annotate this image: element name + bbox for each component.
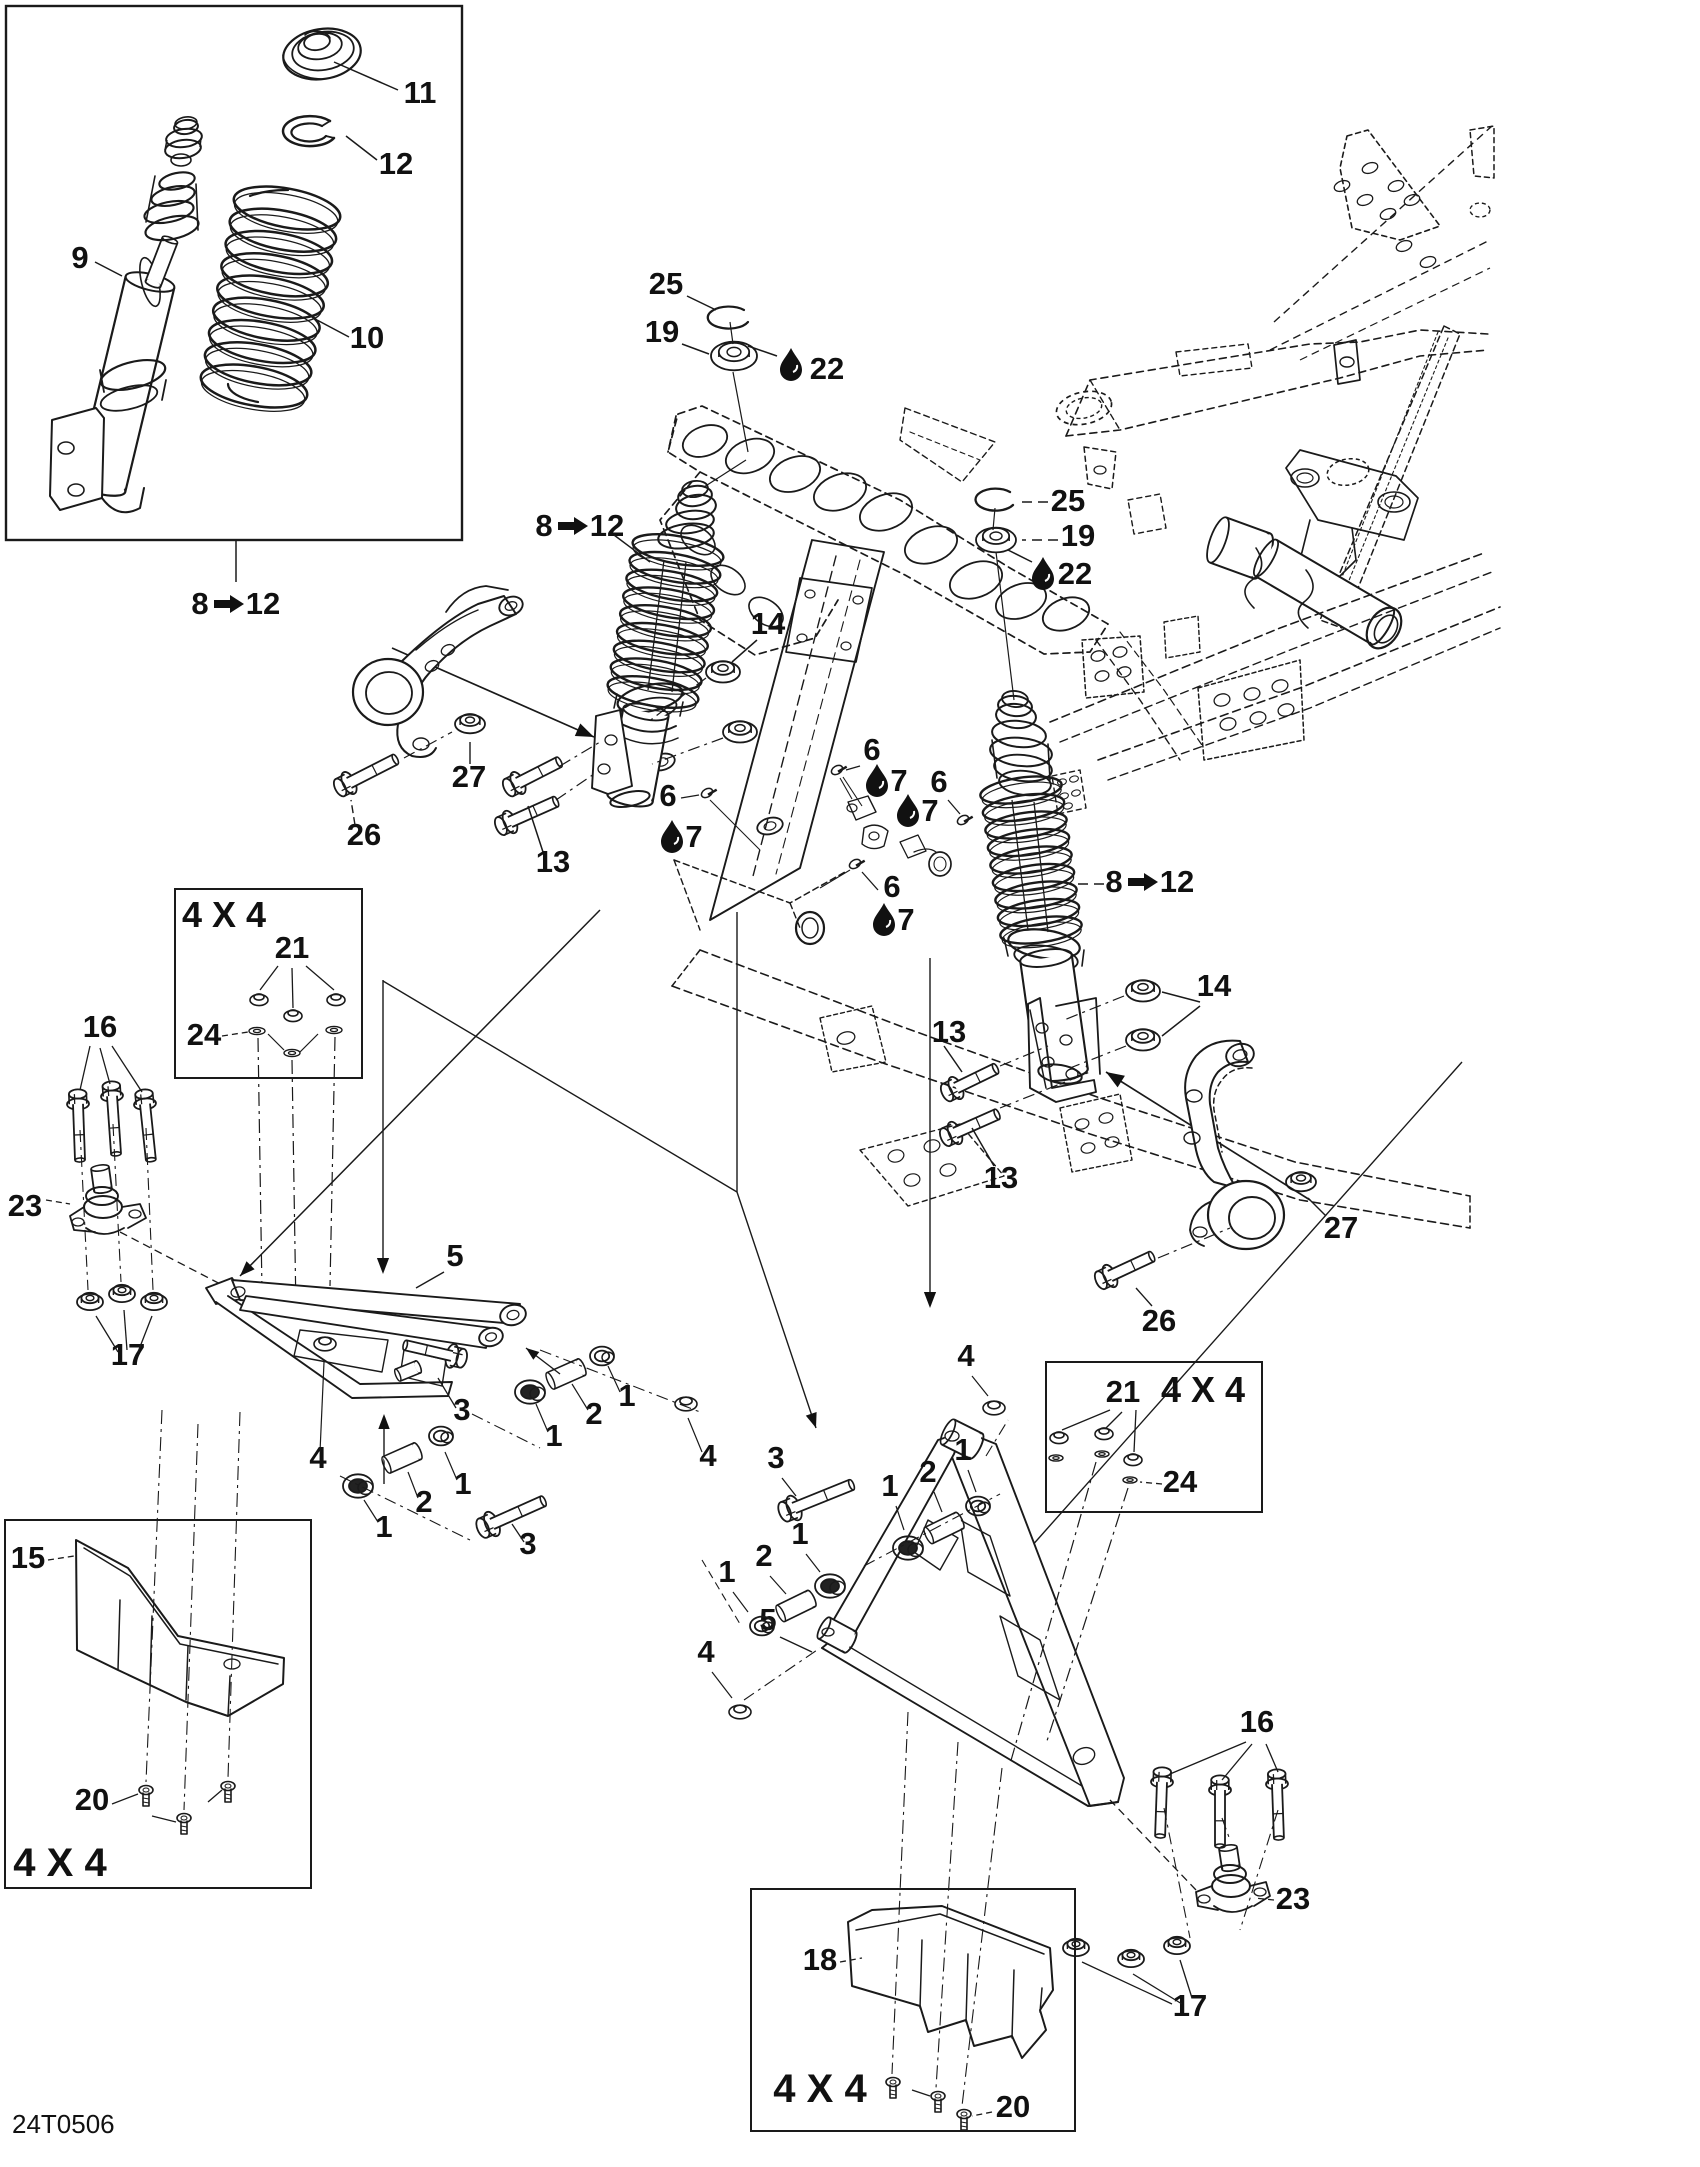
svg-text:10: 10 (350, 320, 384, 355)
svg-text:22: 22 (1058, 556, 1092, 591)
svg-text:12: 12 (379, 146, 413, 181)
svg-text:21: 21 (1106, 1374, 1140, 1409)
svg-text:3: 3 (519, 1526, 536, 1561)
svg-text:6: 6 (863, 732, 880, 767)
svg-text:12: 12 (1160, 864, 1194, 899)
svg-text:12: 12 (246, 586, 280, 621)
svg-text:2: 2 (585, 1396, 602, 1431)
svg-text:25: 25 (1051, 483, 1085, 518)
svg-text:12: 12 (590, 508, 624, 543)
svg-text:24T0506: 24T0506 (12, 2109, 115, 2139)
svg-text:9: 9 (71, 240, 88, 275)
svg-text:2: 2 (919, 1454, 936, 1489)
svg-text:1: 1 (545, 1418, 562, 1453)
svg-text:1: 1 (954, 1432, 971, 1467)
svg-text:4 X 4: 4 X 4 (1161, 1369, 1245, 1410)
svg-text:6: 6 (883, 869, 900, 904)
svg-text:20: 20 (996, 2089, 1030, 2124)
svg-text:8: 8 (191, 586, 208, 621)
svg-text:27: 27 (1324, 1210, 1358, 1245)
svg-text:2: 2 (755, 1538, 772, 1573)
svg-text:14: 14 (751, 606, 786, 641)
svg-text:11: 11 (404, 75, 437, 110)
svg-text:7: 7 (685, 819, 702, 854)
svg-text:16: 16 (1240, 1704, 1274, 1739)
svg-text:3: 3 (453, 1392, 470, 1427)
svg-text:15: 15 (11, 1540, 45, 1575)
svg-text:13: 13 (984, 1160, 1018, 1195)
svg-text:1: 1 (881, 1468, 898, 1503)
svg-text:21: 21 (275, 930, 309, 965)
svg-text:1: 1 (454, 1466, 471, 1501)
svg-text:5: 5 (446, 1238, 463, 1273)
svg-text:4 X 4: 4 X 4 (13, 1841, 107, 1885)
svg-text:25: 25 (649, 266, 683, 301)
svg-text:1: 1 (375, 1509, 392, 1544)
svg-text:1: 1 (718, 1554, 735, 1589)
svg-text:23: 23 (1276, 1881, 1310, 1916)
svg-text:18: 18 (803, 1942, 837, 1977)
svg-text:24: 24 (187, 1017, 222, 1052)
svg-text:6: 6 (930, 764, 947, 799)
svg-text:26: 26 (1142, 1303, 1176, 1338)
svg-text:16: 16 (83, 1009, 117, 1044)
svg-text:22: 22 (810, 351, 844, 386)
svg-text:1: 1 (791, 1516, 808, 1551)
svg-text:4: 4 (309, 1440, 327, 1475)
svg-text:19: 19 (645, 314, 679, 349)
svg-text:13: 13 (536, 844, 570, 879)
svg-text:14: 14 (1197, 968, 1232, 1003)
svg-text:4: 4 (697, 1634, 715, 1669)
svg-text:27: 27 (452, 759, 486, 794)
svg-text:13: 13 (932, 1014, 966, 1049)
svg-text:7: 7 (890, 763, 907, 798)
svg-text:8: 8 (1105, 864, 1122, 899)
svg-text:8: 8 (535, 508, 552, 543)
svg-text:26: 26 (347, 817, 381, 852)
svg-text:23: 23 (8, 1188, 42, 1223)
svg-text:20: 20 (75, 1782, 109, 1817)
svg-text:4: 4 (957, 1338, 975, 1373)
svg-text:4 X 4: 4 X 4 (182, 894, 266, 935)
svg-text:4 X 4: 4 X 4 (773, 2067, 867, 2111)
svg-text:17: 17 (111, 1337, 145, 1372)
svg-text:4: 4 (699, 1438, 717, 1473)
svg-text:24: 24 (1163, 1464, 1198, 1499)
svg-text:6: 6 (659, 778, 676, 813)
svg-text:19: 19 (1061, 518, 1095, 553)
svg-text:3: 3 (767, 1440, 784, 1475)
svg-text:2: 2 (415, 1484, 432, 1519)
svg-text:7: 7 (897, 902, 914, 937)
